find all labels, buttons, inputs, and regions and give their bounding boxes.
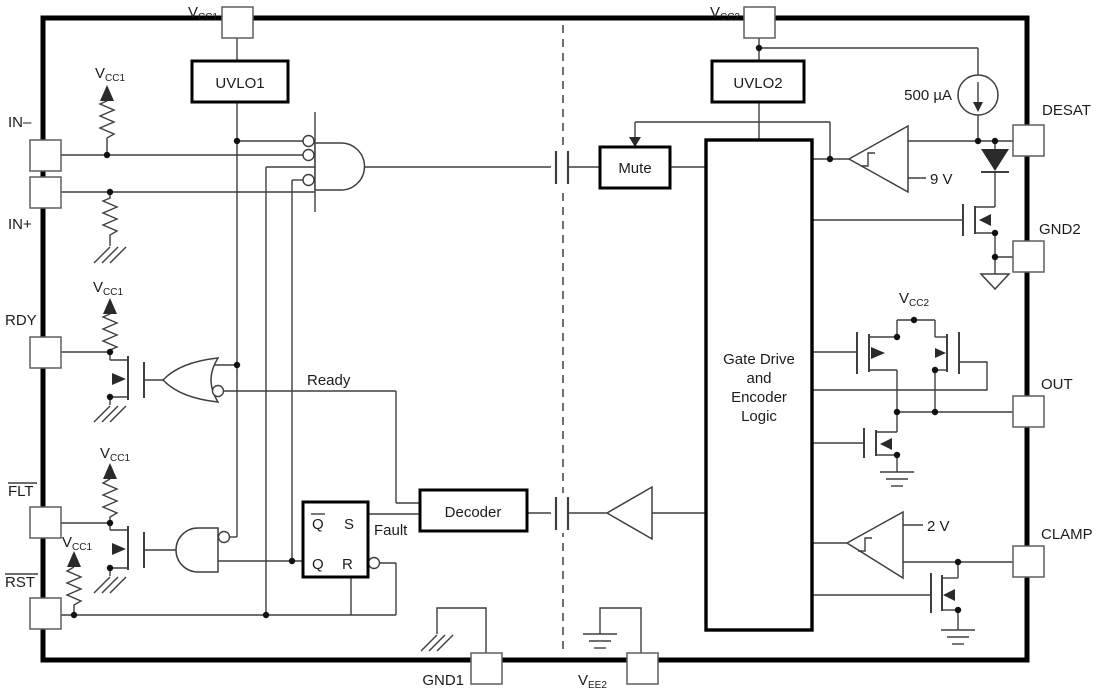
pin-flt [30, 507, 61, 538]
pin-out [1013, 396, 1044, 427]
vee2-wire [583, 608, 641, 653]
pullup-mosfet-left [812, 332, 897, 412]
clamp-threshold-label: 2 V [927, 518, 950, 535]
in-minus-pullup-resistor [100, 85, 114, 155]
pin-in-minus [30, 140, 61, 171]
pin-vee2 [627, 653, 658, 684]
mute-label: Mute [618, 160, 651, 177]
svg-text:Gate Drive: Gate Drive [723, 351, 795, 368]
chassis-ground-icon [94, 247, 126, 263]
rail-label-vcc1: VCC1 [95, 65, 125, 84]
pins [30, 7, 1044, 684]
uvlo2-label: UVLO2 [733, 75, 782, 92]
decoder-label: Decoder [445, 504, 502, 521]
block-diagram: VCC1 VCC2 IN– IN+ RDY FLT RST DESAT GND2… [0, 0, 1100, 695]
mosfet-arrow-icon [112, 373, 126, 385]
input-and-gate [315, 143, 364, 190]
chassis-ground-icon [94, 577, 126, 593]
pin-label-rdy: RDY [5, 312, 37, 329]
vcc1-arrow-icon [100, 85, 114, 101]
pin-label-gnd2: GND2 [1039, 221, 1081, 238]
rail-label-vcc1: VCC1 [62, 534, 92, 553]
desat-discharge-mosfet [963, 204, 1013, 289]
pin-clamp [1013, 546, 1044, 577]
pin-desat [1013, 125, 1044, 156]
blanking-diode-icon [981, 149, 1009, 171]
pin-rdy [30, 337, 61, 368]
pin-rst [30, 598, 61, 629]
vcc1-arrow-icon [67, 551, 81, 567]
clamp-mosfet [812, 562, 975, 644]
desat-current-label: 500 µA [904, 87, 952, 104]
pin-vcc1 [222, 7, 253, 38]
pin-vcc2 [744, 7, 775, 38]
labels: VCC1 VCC2 IN– IN+ RDY FLT RST DESAT GND2… [5, 4, 1093, 691]
ready-or-gate [163, 358, 218, 402]
pin-gnd2 [1013, 241, 1044, 272]
ready-signal-label: Ready [307, 372, 351, 389]
latch-s-label: S [344, 516, 354, 533]
mosfet-arrow-icon [943, 589, 955, 601]
fault-signal-label: Fault [374, 522, 408, 539]
rdy-pulldown-mosfet [94, 352, 163, 422]
vcc1-arrow-icon [103, 463, 117, 479]
pullup-mosfet-right [812, 332, 987, 412]
pin-in-plus [30, 177, 61, 208]
flt-pulldown-mosfet [94, 523, 176, 593]
pulldown-mosfet [812, 412, 914, 486]
svg-text:Logic: Logic [741, 408, 777, 425]
desat-threshold-label: 9 V [930, 171, 953, 188]
feedback-buffer [607, 487, 652, 539]
chassis-ground-icon [421, 635, 453, 651]
pin-label-in-plus: IN+ [8, 216, 32, 233]
latch-r-label: R [342, 556, 353, 573]
pin-label-vcc2: VCC2 [710, 4, 740, 23]
chassis-ground-icon [94, 406, 126, 422]
in-plus-pulldown-resistor [94, 192, 126, 263]
pin-gnd1 [471, 653, 502, 684]
pin-label-clamp: CLAMP [1041, 526, 1093, 543]
mosfet-arrow-icon [935, 348, 946, 358]
rdy-circuit [61, 298, 420, 503]
desat-network [812, 141, 1013, 289]
earth-ground-icon [880, 472, 914, 486]
svg-text:and: and [746, 370, 771, 387]
pin-label-vcc1: VCC1 [188, 4, 218, 23]
pin-label-rst: RST [5, 574, 35, 591]
mosfet-arrow-icon [979, 214, 991, 226]
gnd1-wire [421, 608, 486, 653]
flt-circuit [61, 463, 303, 593]
mosfet-arrow-icon [112, 543, 126, 555]
earth-ground-icon [941, 630, 975, 644]
mosfet-arrow-icon [880, 438, 892, 450]
pin-label-desat: DESAT [1042, 102, 1091, 119]
earth-ground-icon [583, 634, 617, 648]
pin-label-vee2: VEE2 [578, 672, 607, 691]
vcc1-arrow-icon [103, 298, 117, 314]
latch-q-label: Q [312, 556, 324, 573]
uvlo1-label: UVLO1 [215, 75, 264, 92]
signal-ground-icon [981, 274, 1009, 289]
clamp-comparator [847, 512, 903, 578]
fault-and-gate [176, 528, 218, 572]
mosfet-arrow-icon [871, 347, 885, 359]
clamp-circuit [812, 512, 1013, 644]
desat-current-source [958, 75, 998, 141]
rail-label-vcc1: VCC1 [93, 279, 123, 298]
pin-label-flt: FLT [8, 483, 34, 500]
pin-label-out: OUT [1041, 376, 1073, 393]
svg-text:Encoder: Encoder [731, 389, 787, 406]
rail-label-vcc2: VCC2 [899, 290, 929, 309]
rail-label-vcc1: VCC1 [100, 445, 130, 464]
pin-label-in-minus: IN– [8, 114, 32, 131]
schematic-canvas: VCC1 VCC2 IN– IN+ RDY FLT RST DESAT GND2… [0, 0, 1100, 695]
latch-qbar-label: Q [312, 516, 324, 533]
output-stage [812, 320, 1013, 486]
pin-label-gnd1: GND1 [422, 672, 464, 689]
